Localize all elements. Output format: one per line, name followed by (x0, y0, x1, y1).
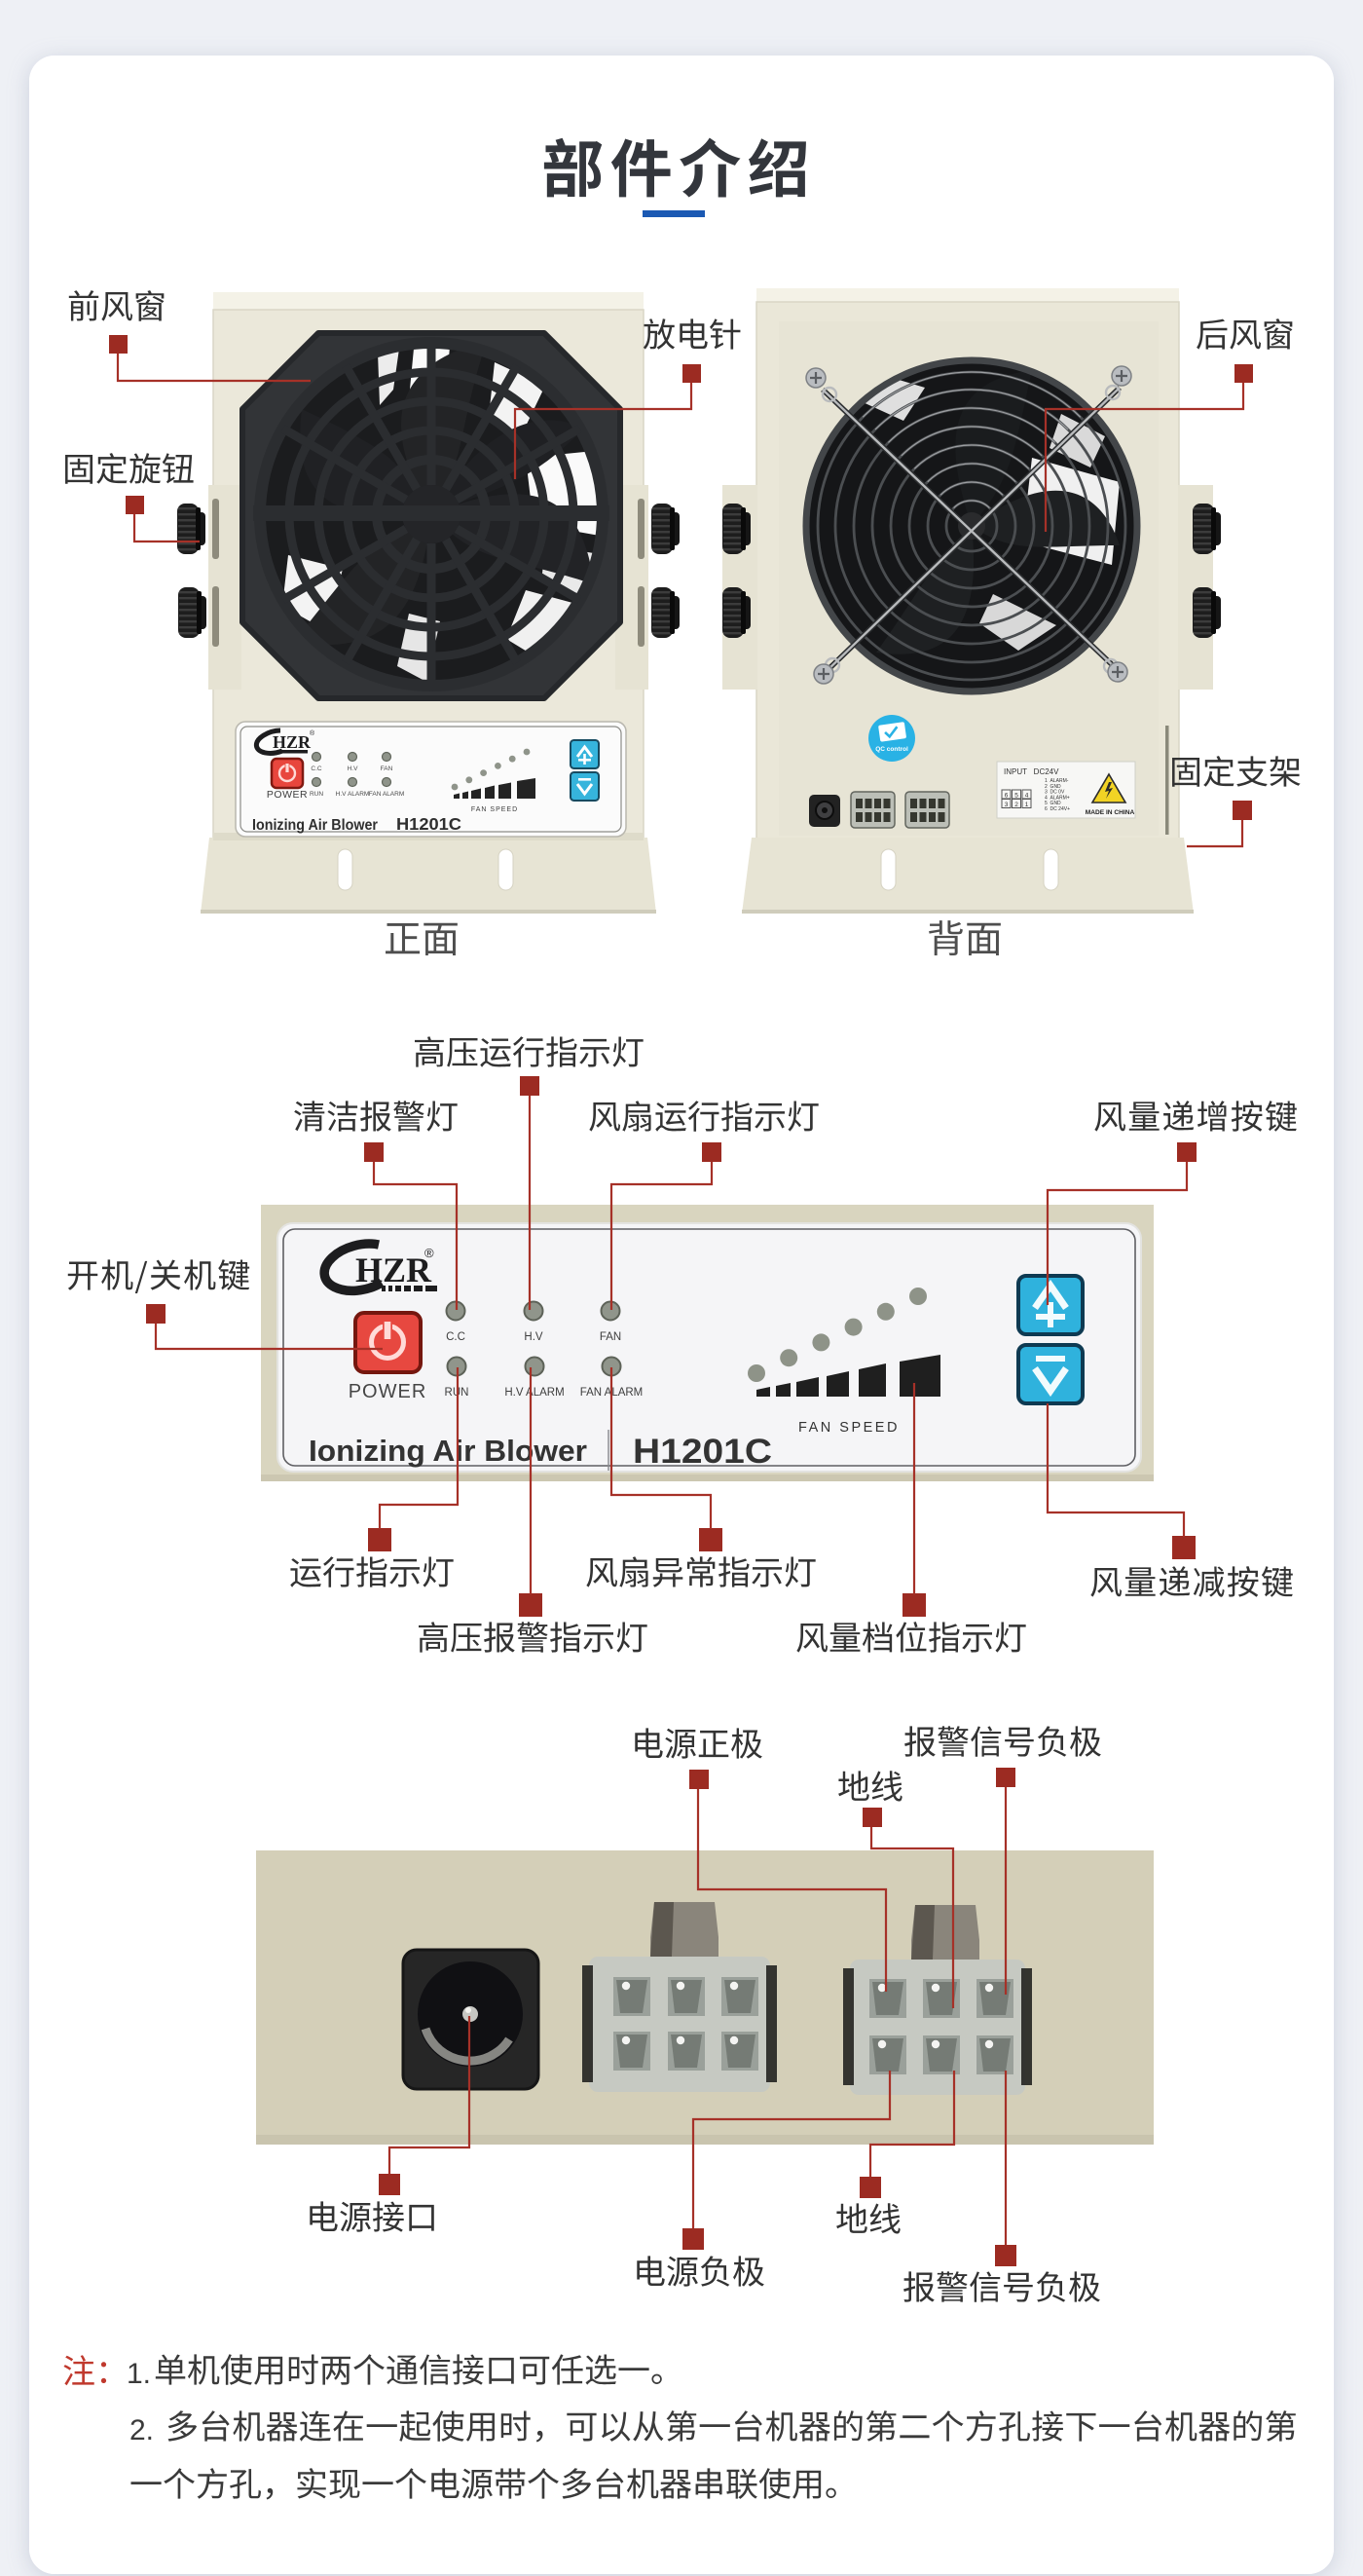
svg-text:RUN: RUN (310, 791, 323, 798)
svg-text:FAN ALARM: FAN ALARM (369, 791, 404, 798)
svg-text:1: 1 (1025, 802, 1029, 808)
svg-text:HZR: HZR (355, 1251, 432, 1289)
svg-text:FAN: FAN (600, 1331, 621, 1343)
svg-text:QC control: QC control (875, 746, 908, 753)
svg-text:MADE IN CHINA: MADE IN CHINA (1086, 809, 1135, 816)
svg-text:C.C: C.C (446, 1331, 465, 1343)
svg-text:H.V ALARM: H.V ALARM (336, 791, 370, 798)
svg-text:1.: 1. (127, 2358, 151, 2390)
svg-text:C.C: C.C (311, 765, 322, 772)
svg-text:FAN SPEED: FAN SPEED (471, 806, 518, 813)
svg-text:FAN SPEED: FAN SPEED (798, 1420, 900, 1436)
svg-text:5: 5 (1014, 793, 1018, 800)
svg-text:POWER: POWER (267, 789, 308, 801)
svg-text:®: ® (424, 1246, 434, 1260)
svg-text:®: ® (310, 729, 315, 737)
svg-text:3: 3 (1005, 802, 1009, 808)
svg-text:POWER: POWER (349, 1381, 427, 1402)
svg-text:6 DC 24V+: 6 DC 24V+ (1045, 806, 1070, 812)
svg-text:Ionizing Air Blower: Ionizing Air Blower (309, 1434, 587, 1468)
svg-text:Ionizing Air Blower: Ionizing Air Blower (252, 817, 378, 834)
svg-text:H.V: H.V (348, 765, 359, 772)
svg-text:H.V ALARM: H.V ALARM (504, 1387, 564, 1399)
svg-text:2.: 2. (129, 2414, 154, 2446)
svg-text:H1201C: H1201C (396, 814, 461, 834)
svg-text:6: 6 (1005, 793, 1009, 800)
svg-text:INPUT DC24V: INPUT DC24V (1004, 767, 1059, 776)
svg-text:2: 2 (1014, 802, 1018, 808)
svg-text:4: 4 (1025, 793, 1029, 800)
svg-text:FAN: FAN (381, 765, 393, 772)
svg-text:HZR: HZR (273, 732, 312, 752)
svg-text:H1201C: H1201C (633, 1433, 772, 1471)
svg-text:H.V: H.V (524, 1331, 543, 1343)
